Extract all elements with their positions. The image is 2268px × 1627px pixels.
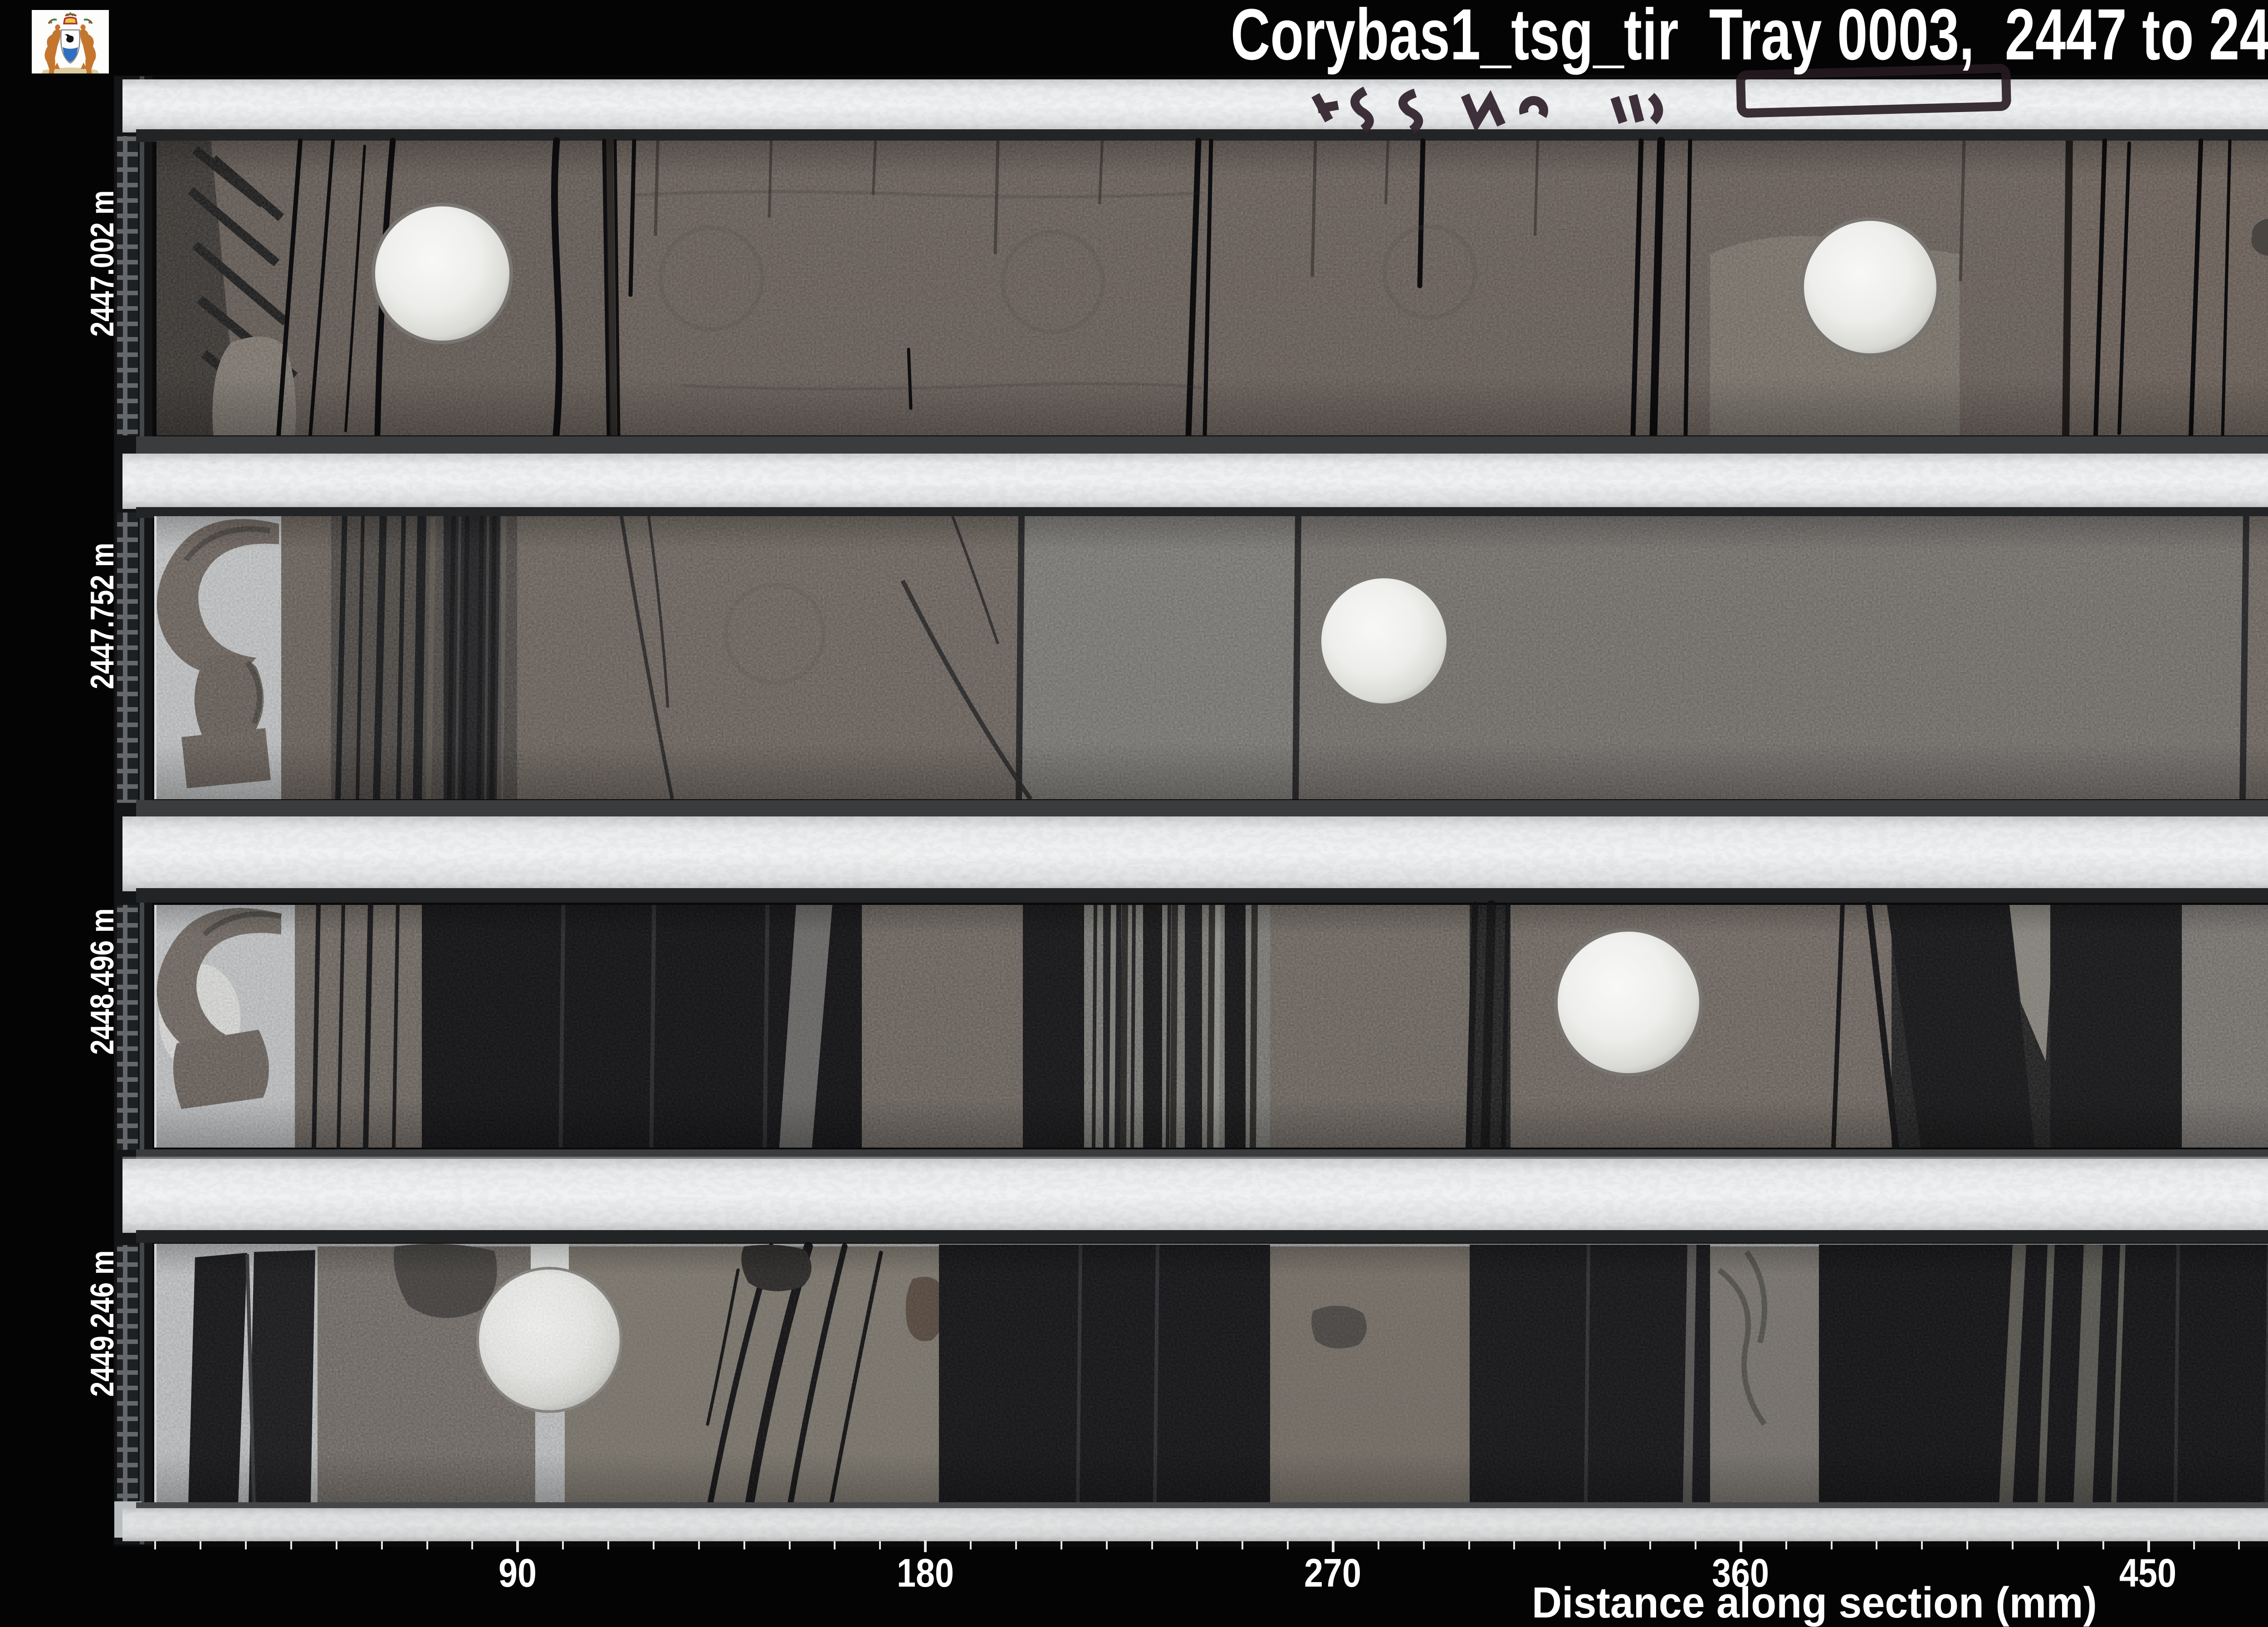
svg-text:90: 90 xyxy=(499,1550,537,1595)
svg-text:2449.246 m: 2449.246 m xyxy=(84,1251,121,1397)
svg-text:2447.752 m: 2447.752 m xyxy=(84,543,121,689)
svg-text:Corybas1_tsg_tir Tray 0003,: Corybas1_tsg_tir Tray 0003, 2447 to 2450… xyxy=(1231,0,2268,75)
svg-text:2448.496 m: 2448.496 m xyxy=(84,909,121,1055)
svg-text:Distance along section (mm): Distance along section (mm) xyxy=(1532,1578,2097,1627)
svg-text:270: 270 xyxy=(1304,1550,1361,1595)
svg-text:180: 180 xyxy=(897,1550,954,1595)
svg-text:450: 450 xyxy=(2119,1550,2176,1595)
svg-text:2447.002 m: 2447.002 m xyxy=(84,191,121,337)
